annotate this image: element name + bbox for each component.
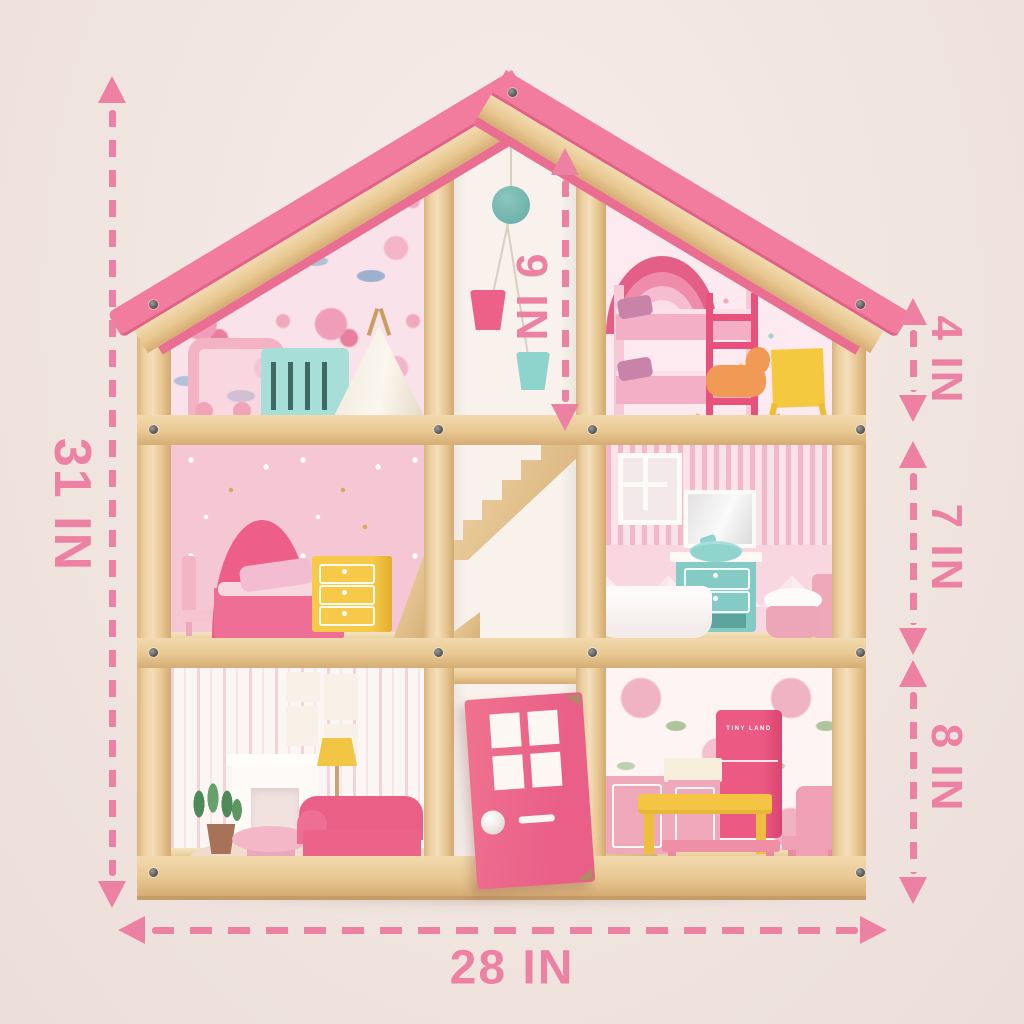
easel-board xyxy=(771,348,825,408)
drawer-knob xyxy=(342,590,347,595)
beam-middle-floor xyxy=(137,638,866,668)
cabinet xyxy=(606,776,668,854)
drawer-knob xyxy=(342,611,347,616)
window-mullion xyxy=(623,482,667,487)
fridge-divider xyxy=(720,760,778,762)
room-living xyxy=(171,668,424,856)
door-hinge xyxy=(564,694,581,707)
drawer xyxy=(319,606,375,626)
bathtub xyxy=(606,586,712,638)
ground-floor-height-label: 8 IN xyxy=(921,724,971,813)
screw-icon xyxy=(434,425,443,434)
mobile-pink-shade xyxy=(470,290,506,330)
screw-icon xyxy=(149,648,158,657)
wall-frame xyxy=(324,674,358,720)
crib xyxy=(261,348,349,418)
door-hinge xyxy=(576,868,593,881)
arrow-up-icon xyxy=(551,148,579,175)
wall-frame xyxy=(286,706,318,746)
door-pane xyxy=(527,710,559,746)
drawer xyxy=(319,585,375,605)
arrow-down-icon xyxy=(899,877,927,904)
mirror xyxy=(684,490,756,548)
vanity-knob xyxy=(713,573,718,578)
post-right xyxy=(832,296,866,896)
arrow-left-icon xyxy=(118,916,145,944)
fridge-brand-label: TINY LAND xyxy=(716,726,782,732)
top-floor-dimension-line xyxy=(910,330,917,392)
screw-icon xyxy=(508,88,517,97)
product-dimension-image: TINY LAND xyxy=(0,0,1024,1024)
middle-floor-dimension-line xyxy=(910,473,917,625)
width-dimension-line xyxy=(152,927,858,934)
screw-icon xyxy=(434,648,443,657)
plant-leaves xyxy=(185,778,245,828)
arrow-down-icon xyxy=(98,881,126,908)
dresser xyxy=(312,556,392,632)
arrow-up-icon xyxy=(899,441,927,468)
post-center-left xyxy=(424,140,454,896)
dining-table-leg xyxy=(644,810,654,854)
chair-leg xyxy=(186,622,192,636)
bench xyxy=(662,840,780,852)
door-mail-slot xyxy=(519,814,555,823)
lamp-shade xyxy=(317,738,357,766)
room-bedroom xyxy=(171,445,424,640)
screw-icon xyxy=(856,648,865,657)
sink-bowl xyxy=(690,541,742,562)
top-floor-height-label: 4 IN xyxy=(921,316,971,405)
wall-frame xyxy=(286,672,320,702)
attic-dimension-line xyxy=(562,180,569,402)
screw-icon xyxy=(588,648,597,657)
screw-icon xyxy=(149,300,158,309)
dining-chair-seat xyxy=(782,836,832,850)
door-pane xyxy=(530,752,562,788)
ground-floor-dimension-line xyxy=(910,692,917,874)
drawer-knob xyxy=(342,569,347,574)
drawer xyxy=(319,564,375,584)
sofa-seat xyxy=(303,830,421,856)
screw-icon xyxy=(856,300,865,309)
post-left xyxy=(137,296,171,896)
toilet-base xyxy=(766,606,820,638)
mobile-teal-shade xyxy=(516,352,550,390)
attic-height-label: 9 IN xyxy=(506,254,556,343)
door-pane xyxy=(492,754,524,790)
screw-icon xyxy=(588,425,597,434)
counter-top xyxy=(664,758,722,782)
arrow-up-icon xyxy=(98,76,126,103)
vanity-knob xyxy=(713,596,718,601)
screw-icon xyxy=(856,868,865,877)
door-pane xyxy=(489,712,521,748)
stairs-lower-flight xyxy=(393,555,424,640)
arrow-down-icon xyxy=(551,404,579,431)
arrow-up-icon xyxy=(899,660,927,687)
arrow-down-icon xyxy=(899,628,927,655)
mobile-disc xyxy=(492,186,530,224)
beam-attic-floor xyxy=(137,415,866,445)
door-knob xyxy=(480,810,506,836)
screw-icon xyxy=(149,868,158,877)
middle-floor-height-label: 7 IN xyxy=(921,504,971,593)
door-lintel xyxy=(452,668,578,684)
front-door xyxy=(464,692,595,890)
room-bathroom xyxy=(606,445,832,640)
window xyxy=(618,453,682,525)
dining-table-top xyxy=(638,794,772,810)
overall-width-label: 28 IN xyxy=(450,941,575,996)
height-dimension-line xyxy=(109,110,116,876)
chair-back xyxy=(182,556,196,618)
overall-height-label: 31 IN xyxy=(42,438,102,572)
room-kitchen: TINY LAND xyxy=(606,668,832,856)
screw-icon xyxy=(149,425,158,434)
arrow-right-icon xyxy=(860,916,887,944)
fridge: TINY LAND xyxy=(716,710,782,838)
crib-slats xyxy=(271,362,339,410)
screw-icon xyxy=(856,425,865,434)
